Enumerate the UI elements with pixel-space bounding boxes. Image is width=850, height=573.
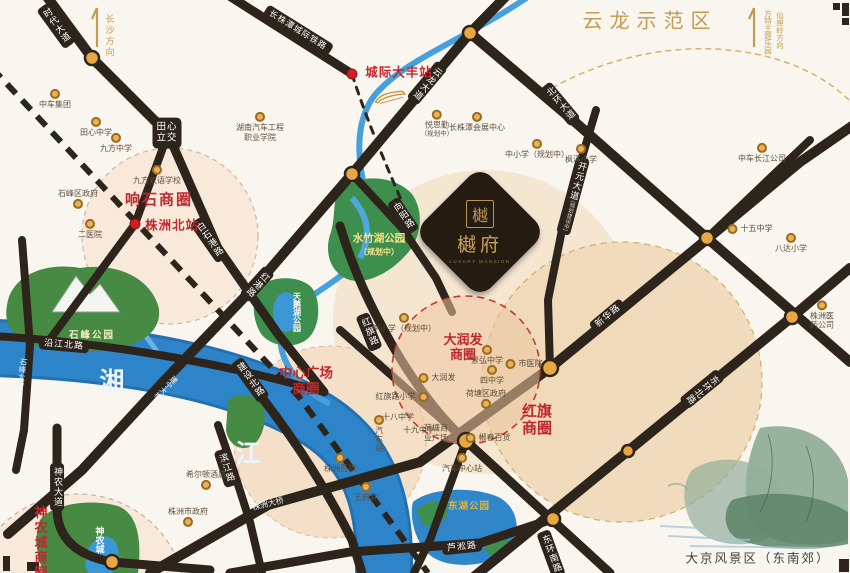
tianxin-line1: 田心 <box>156 122 177 133</box>
logo-seal-icon: 樾 <box>466 200 494 228</box>
poi-label: 大润发 <box>432 373 456 382</box>
center-plaza-line1: 中心广场 <box>279 365 333 381</box>
poi-exhibition: 长株潭会展中心 <box>449 112 505 132</box>
poi-qichezhan: 汽车站 <box>374 415 384 453</box>
poi-school-plan-2: 中小学（规划中） <box>372 313 436 333</box>
poi-label: 汽车中心站 <box>442 464 482 473</box>
poi-yiyao: 株洲医药公司 <box>808 300 836 329</box>
poi-label: 荷塘商 <box>424 423 448 432</box>
poi-label: 十五中学 <box>741 224 773 233</box>
river-char-xiang: 湘 <box>99 362 124 398</box>
fangte-direction: 方特主题乐园 <box>763 10 774 55</box>
poi-dot <box>183 517 193 527</box>
poi-label: 悦思勤 <box>425 121 449 130</box>
poi-dot <box>335 453 345 463</box>
poi-jinghong: 景弘中学 <box>471 345 503 365</box>
poi-label: 中小学（规划中） <box>372 324 436 333</box>
tianxin-line2: 立交 <box>156 133 177 144</box>
poi-label: 株洲百货 <box>324 464 356 473</box>
poi-dot <box>152 165 162 175</box>
poi-dot <box>419 392 429 402</box>
poi-zhongche-changjiang: 中车长江公司 <box>738 143 786 163</box>
poi-hilton: 希尔顿酒店 <box>186 470 226 490</box>
zhuzhou-location-map: 云龙示范区 大京风景区（东南郊） 长沙方向 方特主题乐园 仙庾岭方向 时代大道 … <box>0 0 850 573</box>
dajing-scenic-label: 大京风景区（东南郊） <box>685 548 830 567</box>
donghu-park-label: 东湖公园 <box>448 498 490 512</box>
poi-dot <box>487 365 497 375</box>
poi-label: 王府井 <box>354 493 378 502</box>
poi-dot <box>472 112 482 122</box>
poi-label: 郴春百货 <box>479 433 511 442</box>
poi-wangfujing: 王府井 <box>354 482 378 502</box>
corner-decor-tr2 <box>842 3 849 16</box>
poi-auto-college: 湖南汽车工程职业学院 <box>236 112 284 142</box>
poi-label: 石峰区政府 <box>58 189 98 198</box>
river-char-jiang: 江 <box>235 434 260 470</box>
poi-label: 荷塘区政府 <box>466 389 506 398</box>
hongqi-circle-label: 红旗 商圈 <box>522 404 552 439</box>
poi-label: 枫溪小学 <box>565 155 597 164</box>
hongqi-line2: 商圈 <box>522 421 552 438</box>
north-station-dot <box>130 219 141 230</box>
poi-label: 市医院 <box>519 359 543 368</box>
poi-shiba: 十八中学 <box>382 412 414 421</box>
poi-dot <box>50 89 60 99</box>
poi-label: 九方中学 <box>100 144 132 153</box>
project-tagline: LUXURY MANSION <box>449 259 510 264</box>
hongqi-line1: 红旗 <box>522 404 552 421</box>
poi-sizhong: 四中学 <box>480 365 504 385</box>
poi-auto-center: 汽车中心站 <box>442 453 482 473</box>
poi-dot <box>201 480 211 490</box>
poi-dot <box>506 359 516 369</box>
poi-zhuzhou-bh: 株洲百货 <box>324 453 356 473</box>
poi-bada: 八达小学 <box>775 233 807 253</box>
center-plaza-label: 中心广场 商圈 <box>279 365 333 396</box>
poi-label: 职业学院 <box>244 133 276 142</box>
poi-fengxi: 枫溪小学 <box>565 144 597 164</box>
poi-shiwu: 十五中学 <box>728 224 773 234</box>
poi-label: 希尔顿酒店 <box>186 470 226 479</box>
poi-dot <box>728 224 738 234</box>
poi-dot <box>576 144 586 154</box>
poi-dot <box>457 453 467 463</box>
project-name: 樾府 <box>457 230 503 257</box>
poi-label: 株洲医药公司 <box>808 311 836 329</box>
poi-label: 中小学（规划中） <box>505 150 569 159</box>
poi-darunfa: 大润发 <box>419 373 456 383</box>
poi-jiufang-bilingual: 九方双语学校 <box>133 165 181 185</box>
poi-dot <box>419 373 429 383</box>
poi-label: 红旗路小学 <box>376 392 416 401</box>
poi-shifeng-gov: 石峰区政府 <box>58 189 98 209</box>
poi-dot <box>73 199 83 209</box>
poi-dot <box>466 433 476 443</box>
north-arrow-changsha-icon <box>90 3 104 49</box>
poi-dot <box>532 139 542 149</box>
dafeng-station-label: 城际大丰站 <box>365 62 433 81</box>
poi-dot <box>399 313 409 323</box>
yunlong-zone-title: 云龙示范区 <box>583 5 718 34</box>
poi-dot <box>361 482 371 492</box>
poi-jiufang-school: 九方中学 <box>100 133 132 153</box>
dafeng-station-dot <box>347 69 358 80</box>
poi-label: 八达小学 <box>775 244 807 253</box>
poi-er-hospital: 二医院 <box>78 219 102 239</box>
poi-dot <box>85 219 95 229</box>
poi-dot <box>786 233 796 243</box>
poi-dot <box>374 415 384 425</box>
xianyuling-direction: 仙庾岭方向 <box>775 11 786 49</box>
poi-hongqi-primary: 红旗路小学 <box>376 392 429 402</box>
yunlong-zone-arc <box>552 49 850 102</box>
poi-label: 四中学 <box>480 376 504 385</box>
poi-hetang-gov: 荷塘区政府 <box>466 389 506 409</box>
poi-school-plan-1: 中小学（规划中） <box>505 139 569 159</box>
shuizhuhu-park-label: 水竹湖公园 <box>353 231 406 246</box>
poi-label: 景弘中学 <box>471 356 503 365</box>
poi-chenchun: 郴春百货 <box>466 433 511 443</box>
poi-hetang-plaza: 荷塘商业广场 <box>424 423 448 442</box>
poi-zhongche: 中车集团 <box>39 89 71 109</box>
poi-dot <box>91 117 101 127</box>
corner-decor-br <box>839 559 849 572</box>
poi-shi-hospital: 市医院 <box>506 359 543 369</box>
poi-dot <box>757 143 767 153</box>
poi-dot <box>255 112 265 122</box>
poi-label: 十八中学 <box>382 412 414 421</box>
poi-label: 九方双语学校 <box>133 176 181 185</box>
poi-dot <box>817 300 827 310</box>
fangte-arrow-icon <box>747 3 761 49</box>
center-plaza-line2: 商圈 <box>279 381 333 397</box>
tianxin-interchange-badge: 田心 立交 <box>152 118 181 149</box>
corner-decor-tr3 <box>842 18 849 25</box>
corner-decor-bl1 <box>3 556 10 571</box>
poi-label: 业广场 <box>424 434 448 443</box>
shuizhuhu-park-note: （规划中） <box>359 247 399 258</box>
poi-label: 二医院 <box>78 230 102 239</box>
north-station-label: 株洲北站 <box>145 215 199 234</box>
changsha-direction: 长沙方向 <box>104 14 117 58</box>
tianehu-park-label: 天鹅湖公园 <box>292 292 303 332</box>
poi-label: 长株潭会展中心 <box>449 123 505 132</box>
poi-label: 中车集团 <box>39 100 71 109</box>
poi-dot <box>432 110 442 120</box>
shennongcheng-park-label: 神农城 <box>94 527 107 554</box>
xiangshi-circle-label: 响石商圈 <box>125 192 193 209</box>
shennong-circle-label: 神农城商圈 <box>32 506 47 573</box>
poi-dot <box>482 345 492 355</box>
corner-decor-tr1 <box>833 3 840 10</box>
poi-city-gov: 株洲市政府 <box>168 507 208 527</box>
poi-label: 中车长江公司 <box>738 154 786 163</box>
poi-label: 湖南汽车工程 <box>236 123 284 132</box>
poi-label: 株洲市政府 <box>168 507 208 516</box>
poi-dot <box>481 399 491 409</box>
project-logo-content: 樾 樾府 LUXURY MANSION <box>420 200 540 264</box>
poi-label: 汽车站 <box>374 426 383 453</box>
road-label-shennong: 神农大道 <box>50 463 64 511</box>
poi-dot <box>111 133 121 143</box>
